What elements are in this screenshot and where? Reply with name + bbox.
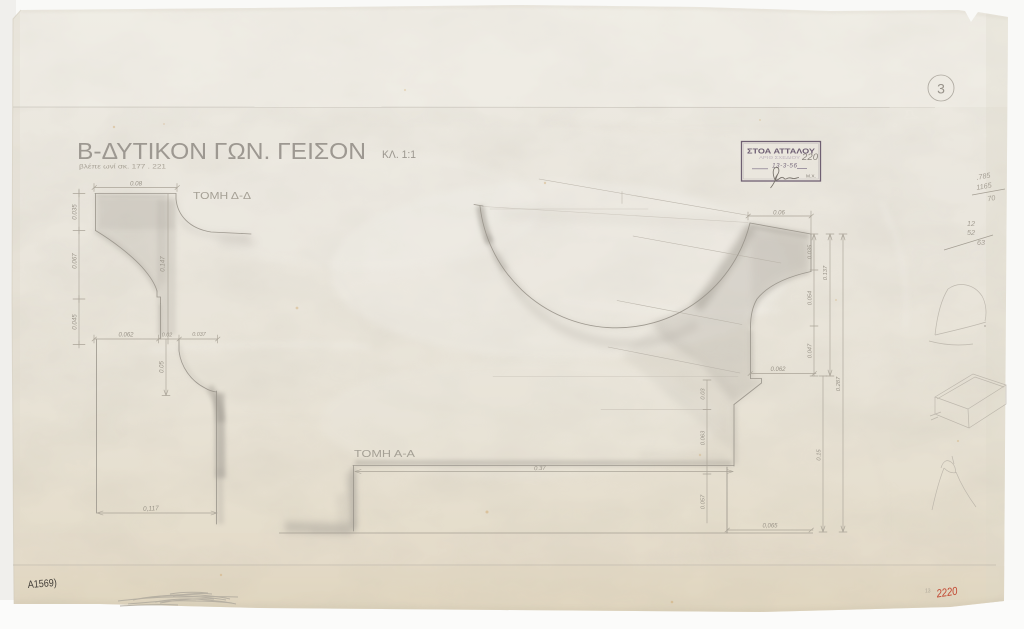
svg-text:0,065: 0,065	[762, 524, 778, 530]
svg-text:0.062: 0.062	[770, 367, 786, 373]
svg-text:ΚΛ. 1:1: ΚΛ. 1:1	[382, 149, 416, 161]
svg-text:0.035: 0.035	[808, 244, 814, 259]
svg-text:0.37: 0.37	[534, 466, 547, 472]
svg-text:A1569): A1569)	[27, 577, 57, 591]
svg-text:0.062: 0.062	[118, 333, 134, 339]
svg-text:βλέπε ωνί σκ. 177 . 221: βλέπε ωνί σκ. 177 . 221	[79, 164, 167, 171]
svg-text:13-3-56: 13-3-56	[772, 162, 797, 169]
svg-text:ΤΟΜΗ Δ-Δ: ΤΟΜΗ Δ-Δ	[193, 191, 252, 202]
svg-text:Μ.Χ.: Μ.Χ.	[806, 174, 816, 180]
svg-text:0.02: 0.02	[162, 333, 173, 339]
svg-text:52: 52	[967, 228, 975, 237]
svg-text:0.054: 0.054	[808, 291, 814, 306]
svg-text:0,117: 0,117	[143, 505, 160, 513]
svg-text:0.037: 0.037	[192, 332, 206, 338]
svg-text:12: 12	[967, 219, 975, 228]
svg-text:Β-ΔΥΤΙΚΟΝ ΓΩΝ. ΓΕΙΣΟΝ: Β-ΔΥΤΙΚΟΝ ΓΩΝ. ΓΕΙΣΟΝ	[77, 138, 366, 164]
svg-text:0.047: 0.047	[808, 343, 814, 358]
svg-text:0.035: 0.035	[72, 204, 79, 220]
svg-text:0.147: 0.147	[160, 256, 167, 272]
svg-text:220: 220	[801, 152, 819, 163]
svg-text:0.045: 0.045	[72, 314, 79, 330]
svg-text:0.06: 0.06	[773, 211, 785, 217]
svg-text:0.08: 0.08	[130, 181, 143, 188]
svg-text:0.137: 0.137	[823, 265, 829, 280]
svg-text:ΤΟΜΗ Α-Α: ΤΟΜΗ Α-Α	[354, 449, 416, 460]
svg-text:0.067: 0.067	[72, 253, 79, 269]
svg-text:0.063: 0.063	[701, 430, 707, 445]
svg-text:ΑΡΙΘ ΣΧΕΔΙΟΥ: ΑΡΙΘ ΣΧΕΔΙΟΥ	[759, 155, 800, 160]
svg-text:0.287: 0.287	[836, 376, 842, 391]
svg-text:3: 3	[937, 81, 945, 97]
svg-text:0.057: 0.057	[701, 494, 707, 509]
svg-text:0.03: 0.03	[701, 388, 707, 400]
svg-text:13: 13	[925, 589, 931, 595]
svg-text:0.05: 0.05	[160, 361, 166, 373]
svg-text:70: 70	[987, 193, 996, 203]
svg-text:0.15: 0.15	[817, 449, 823, 461]
